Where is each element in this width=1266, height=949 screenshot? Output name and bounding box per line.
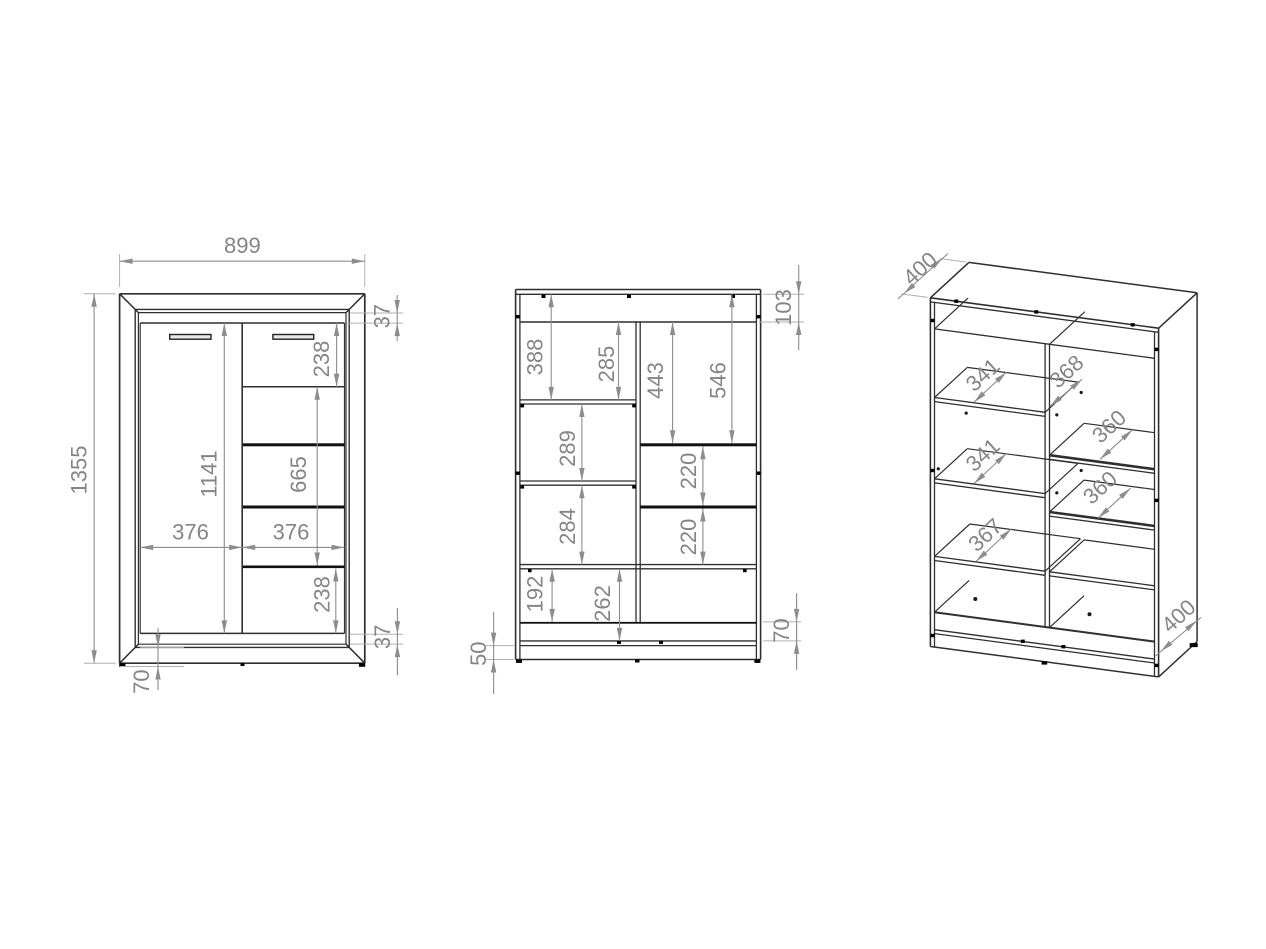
svg-text:192: 192 [523, 576, 548, 613]
svg-text:376: 376 [273, 520, 310, 545]
svg-text:284: 284 [555, 508, 580, 545]
svg-text:70: 70 [129, 669, 154, 693]
svg-text:289: 289 [555, 430, 580, 467]
svg-text:443: 443 [643, 362, 668, 399]
svg-text:220: 220 [676, 453, 701, 490]
svg-text:546: 546 [706, 362, 731, 399]
svg-text:285: 285 [594, 346, 619, 383]
svg-text:665: 665 [286, 456, 311, 493]
svg-text:70: 70 [769, 618, 794, 642]
svg-text:103: 103 [771, 289, 796, 326]
svg-text:37: 37 [370, 304, 395, 328]
svg-text:899: 899 [224, 233, 261, 258]
svg-text:388: 388 [523, 339, 548, 376]
svg-text:1141: 1141 [197, 450, 222, 497]
svg-text:50: 50 [466, 641, 491, 665]
svg-text:220: 220 [676, 519, 701, 556]
svg-text:238: 238 [309, 341, 334, 378]
svg-text:238: 238 [310, 576, 335, 613]
svg-text:262: 262 [590, 585, 615, 622]
svg-text:37: 37 [370, 625, 395, 649]
svg-text:1355: 1355 [67, 446, 92, 495]
svg-text:376: 376 [172, 520, 209, 545]
